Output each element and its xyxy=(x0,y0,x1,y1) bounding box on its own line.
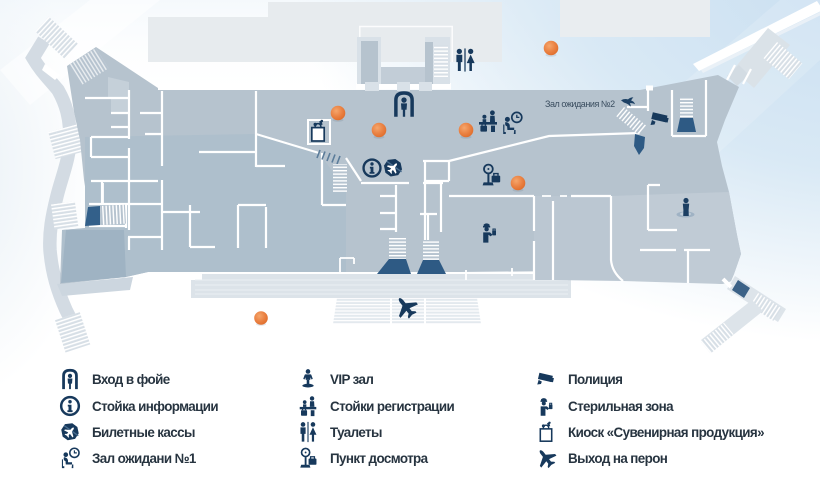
svg-text:Киоск «Сувенирная продукция»: Киоск «Сувенирная продукция» xyxy=(568,425,764,440)
svg-text:Вход в фойе: Вход в фойе xyxy=(92,372,170,387)
svg-text:Выход на перон: Выход на перон xyxy=(568,451,668,466)
svg-text:Стойки регистрации: Стойки регистрации xyxy=(330,399,454,414)
svg-text:Полиция: Полиция xyxy=(568,372,622,387)
svg-text:Билетные кассы: Билетные кассы xyxy=(92,425,195,440)
svg-text:VIP зал: VIP зал xyxy=(330,372,373,387)
svg-text:Туалеты: Туалеты xyxy=(330,425,382,440)
svg-text:Стойка информации: Стойка информации xyxy=(92,399,218,414)
svg-text:Зал ожидания №2: Зал ожидания №2 xyxy=(545,99,615,109)
svg-text:Зал ожидани №1: Зал ожидани №1 xyxy=(92,451,197,466)
svg-text:Пункт досмотра: Пункт досмотра xyxy=(330,451,429,466)
svg-text:Стерильная зона: Стерильная зона xyxy=(568,399,674,414)
